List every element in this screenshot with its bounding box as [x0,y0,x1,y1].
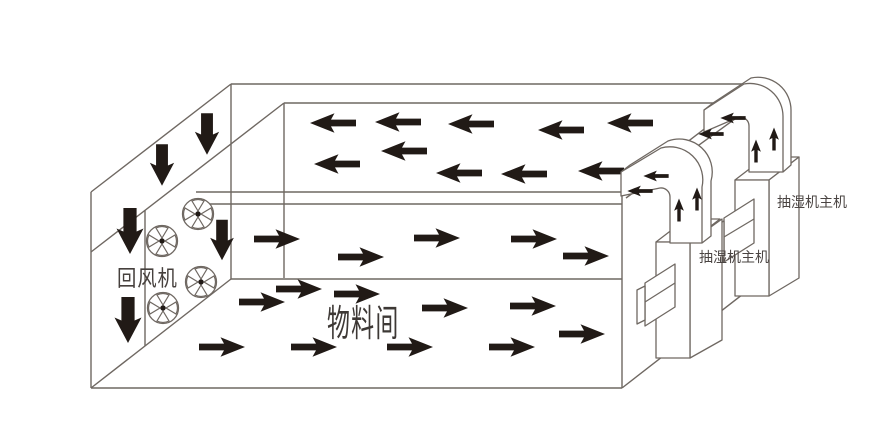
left-arrow [607,113,653,133]
right-arrow [276,279,322,299]
down-arrow [195,113,219,154]
return-fan-label: 回风机 [117,261,178,293]
right-arrow [199,337,245,357]
left-arrow [538,120,584,140]
diagram-canvas [0,0,892,434]
upper-room-airflow [254,228,609,267]
unit-side-panel [769,157,799,296]
dehumidifier-front-label: 抽湿机主机 [699,251,714,267]
left-arrow [578,161,624,181]
right-arrow [414,228,460,248]
right-arrow [254,229,300,249]
fan-icon [148,293,179,324]
right-arrow [489,337,535,357]
dehumidifier-back-label: 抽湿机主机 [777,196,792,212]
right-arrow [239,292,285,312]
material-room-label: 物料间 [327,293,400,347]
down-arrow [150,144,174,185]
left-arrow [501,164,547,184]
right-arrow [338,247,384,267]
fan-icon [183,199,214,230]
left-arrow [314,154,360,174]
down-arrow [115,297,142,343]
airflow-diagram: 回风机 物料间 抽湿机主机 抽湿机主机 [0,0,892,434]
left-arrow [381,141,427,161]
left-arrow [310,113,356,133]
duct-elbow [704,77,791,172]
unit-vent-tab [637,286,645,324]
left-arrow [448,114,494,134]
ceiling-return-airflow [310,112,653,184]
right-arrow [510,296,556,316]
right-arrow [511,229,557,249]
fan-icon [186,267,217,298]
dehumidifier-unit-front [621,139,722,358]
floor-room-airflow [199,279,605,357]
right-arrow [559,324,605,344]
left-arrow [436,163,482,183]
fan-icon [147,226,178,257]
left-arrow [375,112,421,132]
right-arrow [422,298,468,318]
fanwall-top-edge [91,103,284,252]
right-arrow [563,246,609,266]
